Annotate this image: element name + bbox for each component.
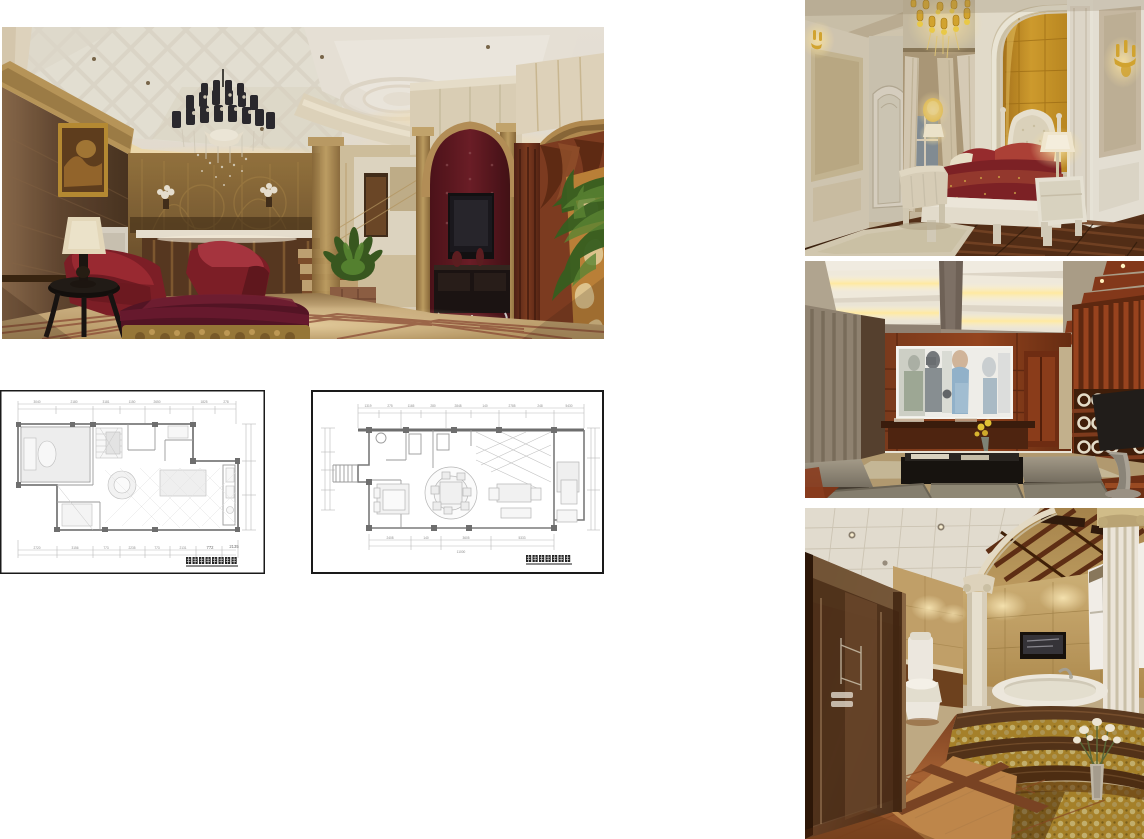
svg-text:2135: 2135 <box>229 544 239 549</box>
svg-text:280: 280 <box>430 404 436 408</box>
svg-text:5430: 5430 <box>565 404 572 408</box>
svg-text:1825: 1825 <box>200 400 207 404</box>
svg-text:2180: 2180 <box>70 400 77 404</box>
svg-text:773: 773 <box>103 546 109 550</box>
svg-text:2235: 2235 <box>128 546 135 550</box>
svg-text:1165: 1165 <box>408 404 415 408</box>
svg-text:2131: 2131 <box>179 546 186 550</box>
svg-text:2408: 2408 <box>386 536 393 540</box>
svg-text:3040: 3040 <box>33 400 40 404</box>
svg-text:3156: 3156 <box>71 546 78 550</box>
svg-text:2848: 2848 <box>454 404 461 408</box>
svg-text:248: 248 <box>537 404 543 408</box>
svg-text:5333: 5333 <box>518 536 525 540</box>
svg-text:140: 140 <box>482 404 488 408</box>
svg-text:2720: 2720 <box>33 546 40 550</box>
svg-text:773: 773 <box>154 546 160 550</box>
svg-text:1150: 1150 <box>129 400 136 404</box>
svg-text:2785: 2785 <box>508 404 515 408</box>
svg-text:2650: 2650 <box>153 400 160 404</box>
svg-text:11000: 11000 <box>457 550 466 554</box>
svg-text:3605: 3605 <box>462 536 469 540</box>
svg-text:3181: 3181 <box>102 400 109 404</box>
svg-text:1319: 1319 <box>364 404 371 408</box>
svg-text:278: 278 <box>223 400 229 404</box>
svg-text:772: 772 <box>207 545 215 550</box>
svg-text:275: 275 <box>387 404 393 408</box>
svg-text:140: 140 <box>423 536 429 540</box>
